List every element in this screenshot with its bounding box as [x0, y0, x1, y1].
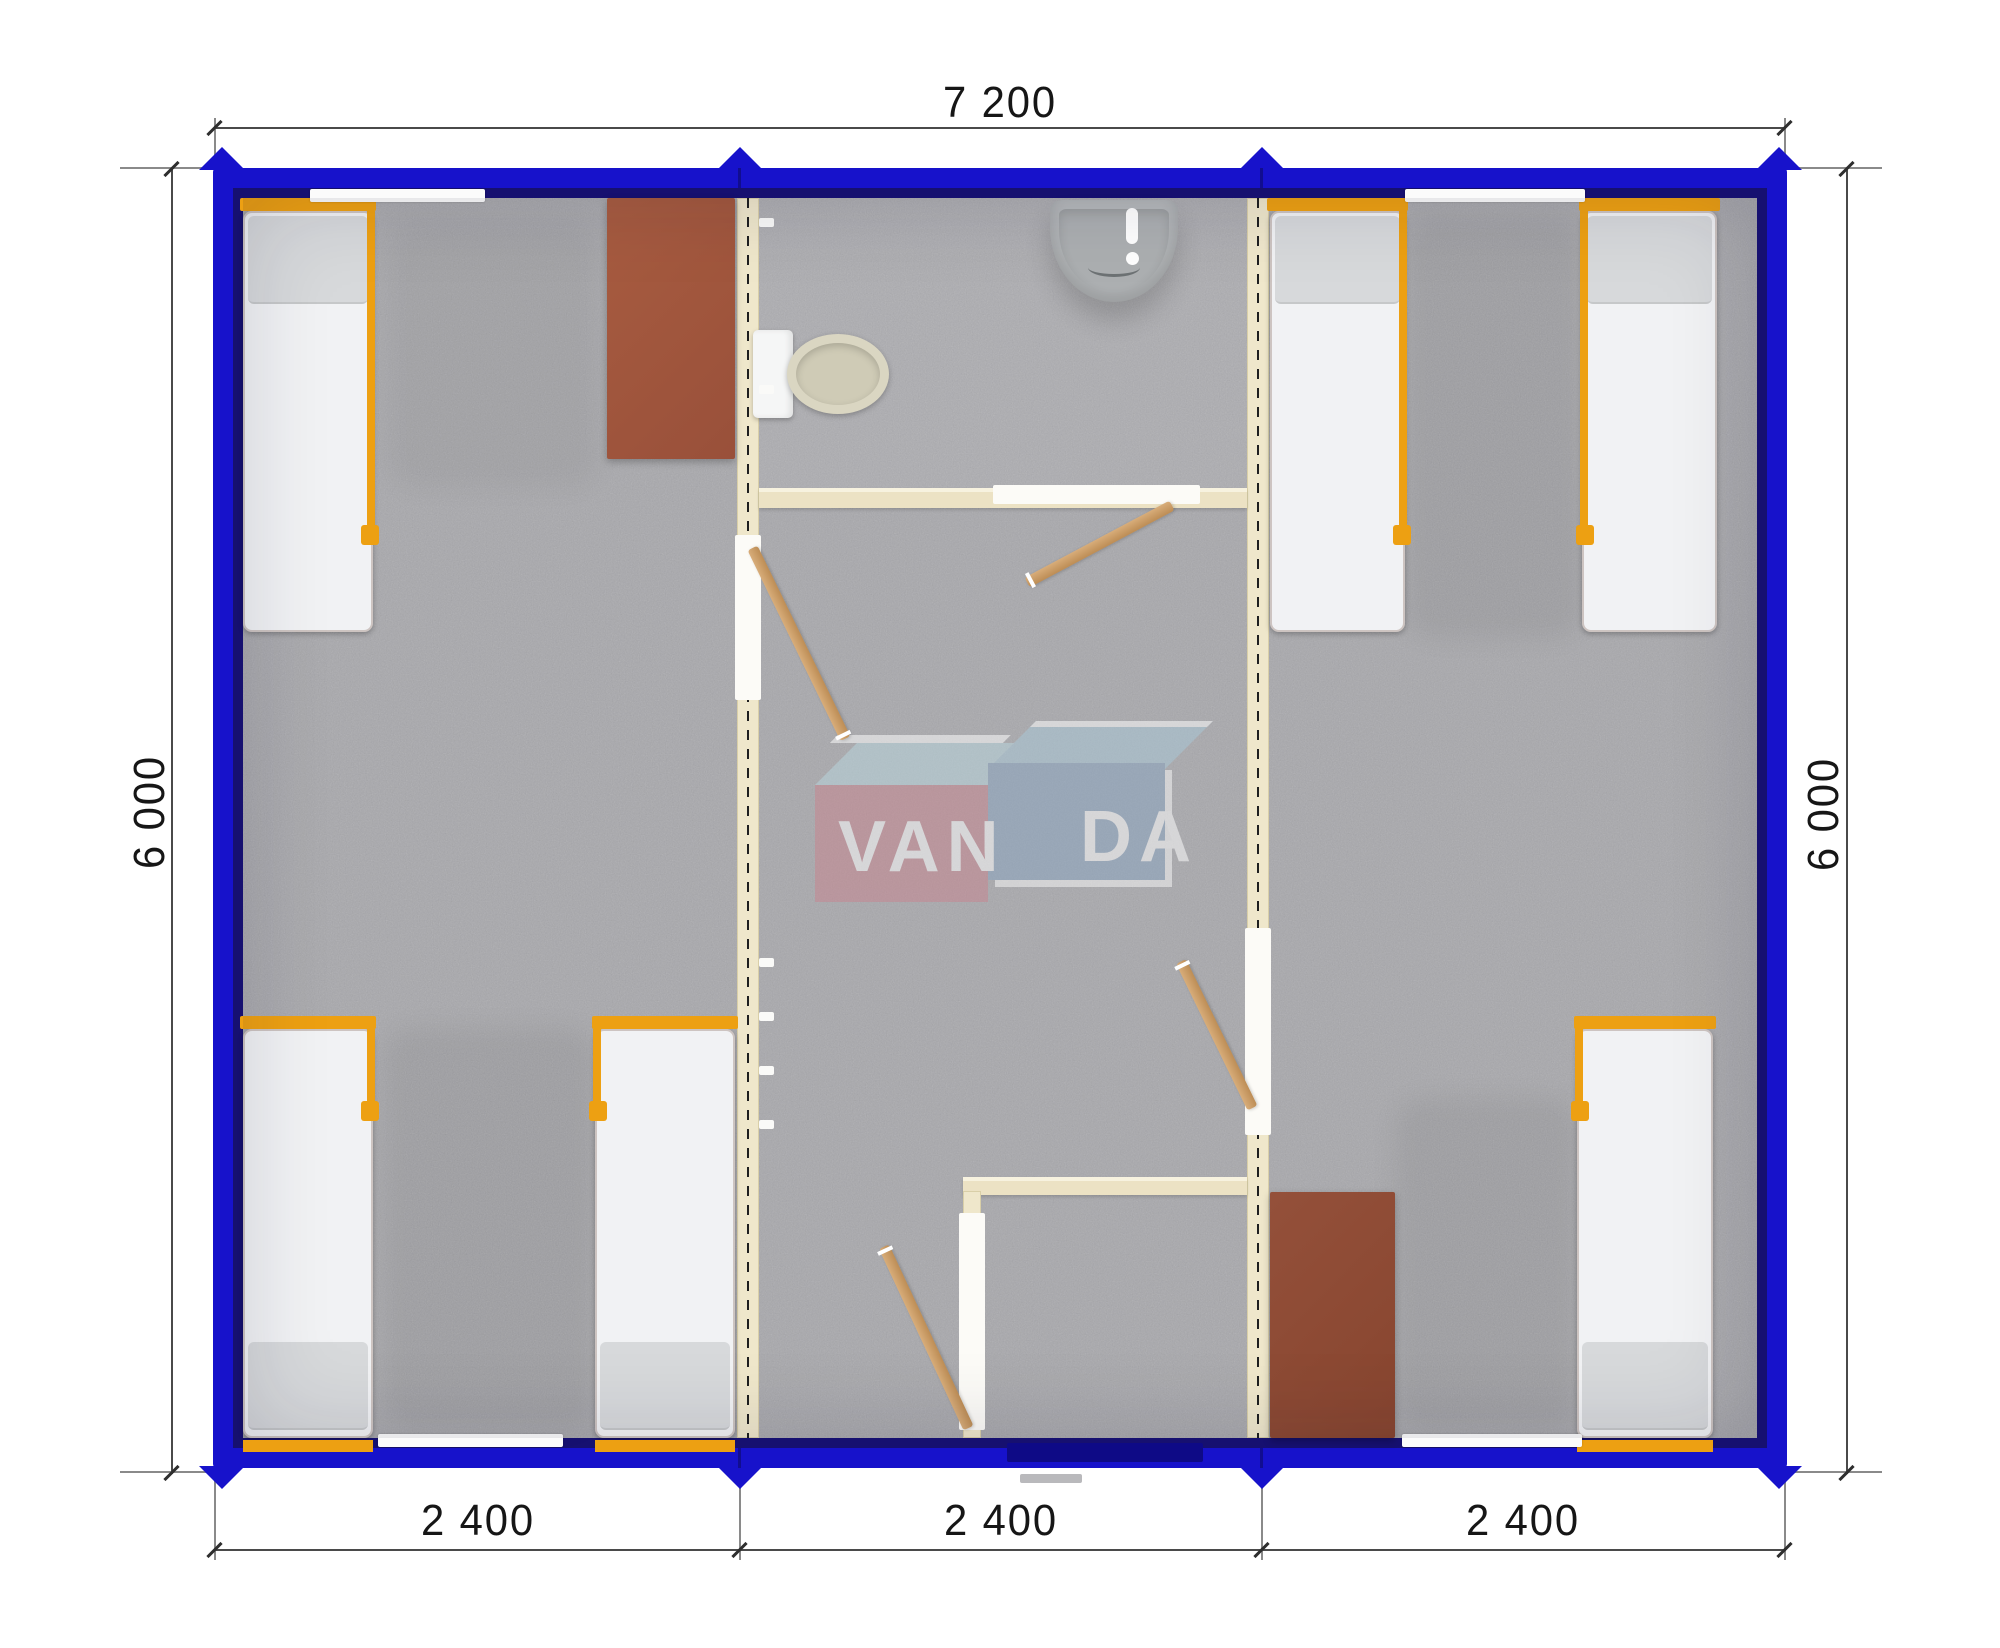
module-joint-marker-icon: [199, 1466, 245, 1489]
floor-shadow: [1395, 1098, 1577, 1428]
extension-line: [1790, 167, 1882, 169]
logo-white-edge: [830, 735, 1011, 743]
toilet: [753, 330, 889, 420]
floor-plan-canvas: 7 200 6 000 6 000 2 400 2 400 2 400: [0, 0, 2000, 1648]
bed-foot: [361, 525, 379, 545]
wall-hook: [759, 218, 774, 227]
floor: VAN DA: [243, 198, 1757, 1438]
pillow: [248, 1342, 368, 1430]
vanda-watermark-logo: VAN DA: [808, 718, 1188, 918]
bed-rail: [367, 211, 375, 529]
toilet-bowl: [787, 334, 889, 414]
bed-foot: [589, 1101, 607, 1121]
bed: [595, 1029, 735, 1438]
bed-rail: [1399, 211, 1407, 529]
bed-rail: [1580, 211, 1588, 529]
partition-wall-right: [1247, 198, 1269, 1438]
entrance-step: [1020, 1474, 1082, 1483]
dimension-line: [215, 1549, 1785, 1551]
wall-hook: [759, 1066, 774, 1075]
bed: [1270, 211, 1405, 632]
extension-line: [1790, 1471, 1882, 1473]
module-joint-line: [1260, 1438, 1263, 1468]
dimension-label-bottom-1: 2 400: [421, 1496, 535, 1546]
bed-rail: [367, 1029, 375, 1105]
sink-overflow: [1088, 258, 1140, 277]
module-joint-marker-icon: [199, 147, 245, 170]
module-joint-marker-icon: [717, 147, 763, 170]
module-joint-marker-icon: [1756, 1466, 1802, 1489]
dimension-label-bottom-2: 2 400: [944, 1496, 1058, 1546]
window: [1402, 1434, 1582, 1447]
vestibule-wall-horizontal: [963, 1177, 1247, 1195]
window: [378, 1434, 563, 1447]
pillow: [248, 216, 368, 304]
bed: [243, 211, 373, 632]
wall-hook: [759, 1012, 774, 1021]
module-joint-marker-icon: [1239, 1466, 1285, 1489]
bed-foot: [1576, 525, 1594, 545]
bed-foot: [1393, 525, 1411, 545]
logo-blue-box-top: [988, 721, 1213, 769]
pillow: [1275, 216, 1400, 304]
bed-rail: [1575, 1029, 1583, 1105]
dimension-label-right: 6 000: [1799, 757, 1849, 871]
wall-hook: [759, 958, 774, 967]
window: [1405, 189, 1585, 202]
bed-foot: [361, 1101, 379, 1121]
desk: [607, 198, 735, 459]
module-joint-marker-icon: [1239, 147, 1285, 170]
module-joint-line: [738, 1438, 741, 1468]
desk: [1270, 1192, 1395, 1438]
logo-text-van: VAN: [838, 806, 1006, 888]
bed: [243, 1029, 373, 1438]
wall-hook: [759, 385, 774, 394]
wall-hook: [759, 1120, 774, 1129]
entrance-door: [1007, 1443, 1203, 1462]
bed: [1577, 1029, 1713, 1438]
dimension-label-top: 7 200: [943, 78, 1057, 128]
pillow: [1582, 1342, 1708, 1430]
module-joint-marker-icon: [717, 1466, 763, 1489]
floor-shadow: [1405, 218, 1582, 638]
dimension-label-left: 6 000: [125, 755, 175, 869]
window: [310, 189, 485, 202]
dimension-label-bottom-3: 2 400: [1466, 1496, 1580, 1546]
bed-rail: [593, 1029, 601, 1105]
module-joint-line: [1260, 168, 1263, 198]
floor-shadow: [388, 218, 598, 488]
faucet-icon: [1126, 208, 1138, 244]
building-outline: VAN DA: [213, 168, 1787, 1468]
module-joint-marker-icon: [1756, 147, 1802, 170]
bed-foot: [1571, 1101, 1589, 1121]
floor-shadow: [383, 1028, 595, 1428]
pillow: [1587, 216, 1712, 304]
pillow: [600, 1342, 730, 1430]
bed: [1582, 211, 1717, 632]
vestibule-door-opening: [959, 1213, 985, 1430]
logo-text-da: DA: [1080, 796, 1198, 878]
module-joint-line: [738, 168, 741, 198]
